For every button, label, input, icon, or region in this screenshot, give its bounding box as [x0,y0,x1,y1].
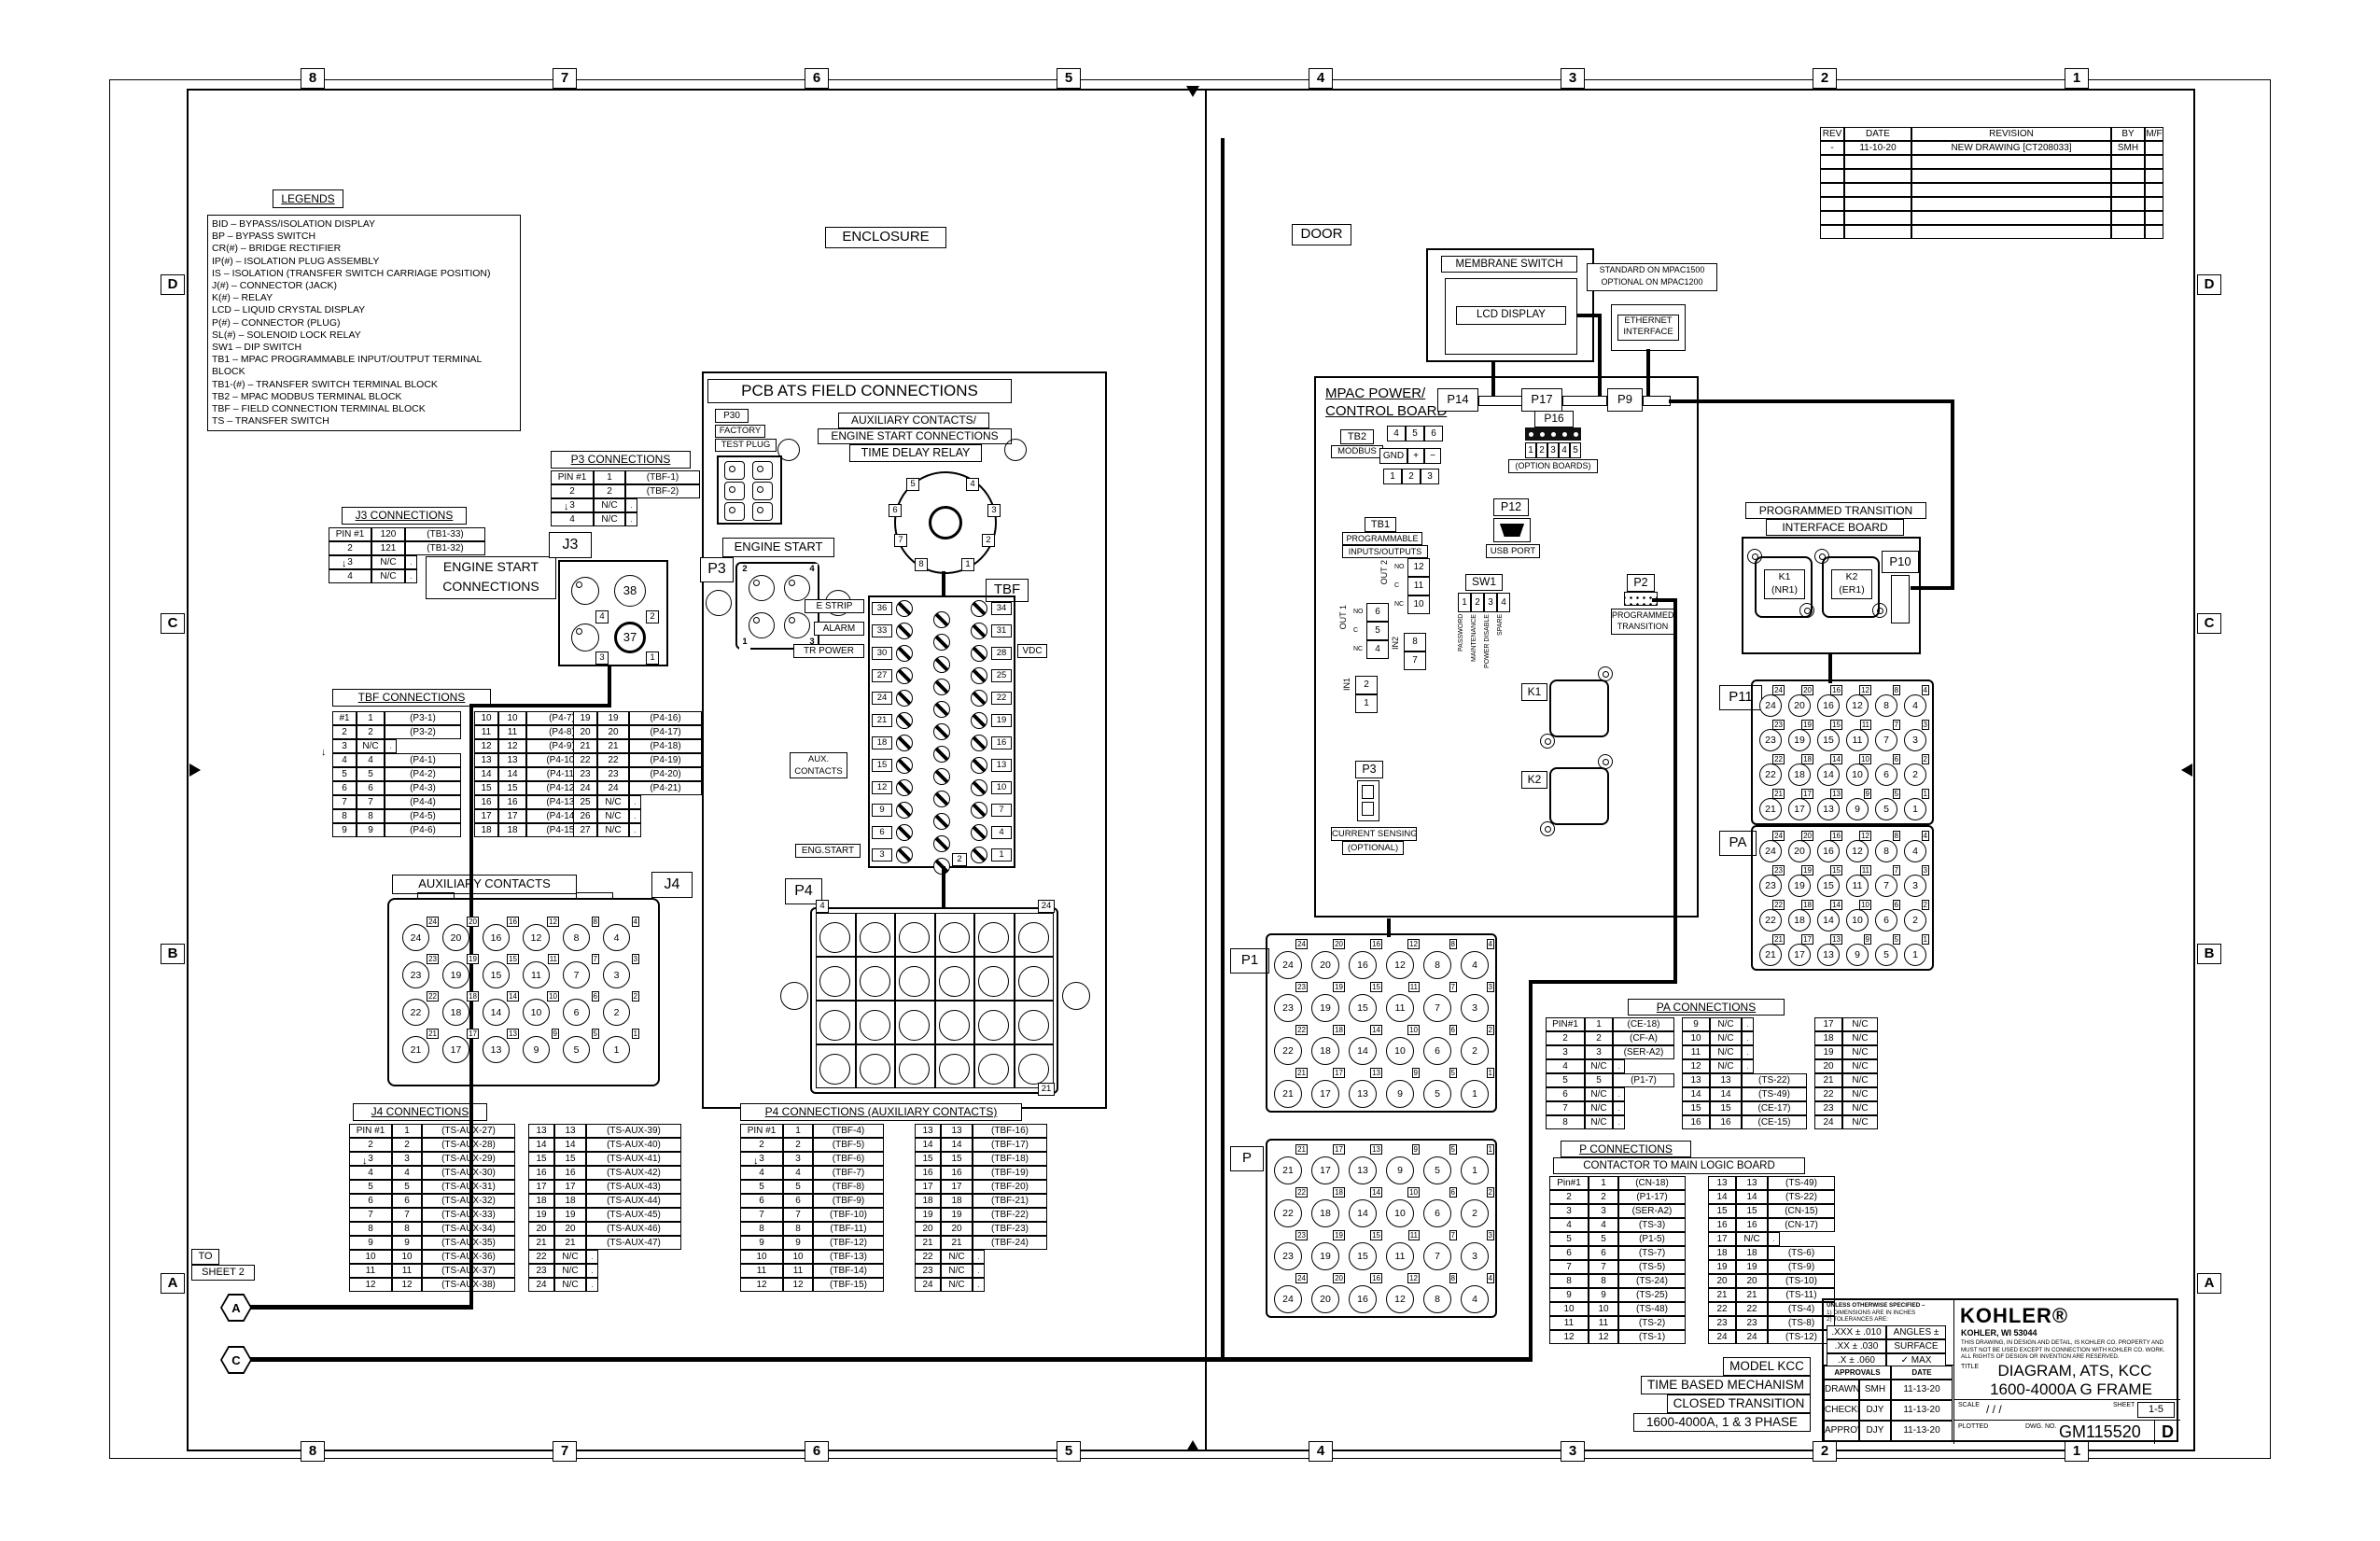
pin-row: 66(P4-3) [332,781,461,795]
pin-number-label: 16 [507,917,519,927]
pin-number-label: 20 [1801,831,1813,841]
p3-pin-arrow: ↓ [564,501,569,512]
connector-pin [895,957,935,1001]
pin-socket: 17 [1788,798,1811,820]
pin-cell: 24 [528,1278,554,1292]
zone-label: 3 [1561,68,1585,89]
pin-cell: 4 [357,753,385,767]
tb1-terminal-tag: NC [1394,595,1407,614]
pin-row: REVDATEREVISIONBYM/F [1820,127,2163,141]
zone-label: 1 [2065,1441,2089,1462]
pin-number-label: 15 [1370,982,1382,992]
connector-pin: 1010 [1383,1187,1421,1230]
pin-number-label: 17 [1801,789,1813,799]
pin-socket: 18 [1311,1199,1339,1227]
pin-cell: (CE-15) [1742,1115,1807,1129]
connector-pin: 11 [1458,1144,1495,1187]
pin-cell: (TBF-4) [813,1124,884,1138]
legend-entry: TB1 – MPAC PROGRAMMABLE INPUT/OUTPUT TER… [212,354,516,378]
terminal-row: GND+− [1379,448,1441,464]
pin-row: 27N/C. [573,823,702,837]
pin-row: 22N/C [1814,1087,1878,1101]
pin-cell: 2 [551,484,594,498]
pin-number-label: 10 [1859,900,1871,910]
pin-cell: N/C [1842,1059,1878,1073]
pin-socket: 12 [1386,1285,1414,1313]
pin-cell: . [1613,1101,1625,1115]
j3-pin-hole-2 [571,623,599,651]
connector-pin: 1414 [480,991,520,1029]
pin-row: 17N/C. [1708,1232,1835,1246]
pin-socket: 20 [1311,1285,1339,1313]
pin-number-label: 4 [1487,939,1494,949]
pin-cell: PIN #1 [740,1124,783,1138]
pin-cell: 21 [941,1236,973,1250]
pin-cell: 22 [573,753,597,767]
wire-segment [1669,399,1954,403]
fold-arrow-left [189,763,201,777]
connector-pin: 1616 [1814,685,1843,720]
ptib-k1-name: K1 [1779,571,1791,582]
pin-cell: 20 [597,725,629,739]
tb1-terminal: NO6 [1353,603,1389,622]
pin-number-label: 20 [1333,1273,1345,1283]
pin-row [1820,155,2163,169]
connector-pin [816,1044,856,1088]
pin-cell: 16 [1736,1218,1768,1232]
pin-cell: 12 [1589,1330,1618,1344]
connector-pin [856,957,896,1001]
zone-label: 8 [301,68,325,89]
pa-table-g1: PIN#11(CE-18)22(CF-A)33(SER-A2)4N/C.55(P… [1546,1017,1674,1129]
option-boards-label: (OPTION BOARDS) [1508,459,1598,473]
pin-socket: 9 [523,1036,550,1063]
pin-row: 10N/C. [1682,1031,1807,1045]
pin-socket: 8 [1875,694,1897,717]
terminal-screw [933,634,950,651]
wire-segment [250,1305,473,1310]
connector-pin: 33 [600,954,640,991]
p30-socket [724,502,745,521]
pin-row [1820,225,2163,239]
k2-screw [1598,754,1613,769]
pin-cell: (TS-6) [1768,1246,1835,1260]
in1-label: IN1 [1342,678,1351,691]
connector-pin: 88 [1872,685,1901,720]
pin-number-label: 14 [1830,900,1842,910]
pin-socket: 1 [1461,1156,1489,1184]
connector-pin [935,1044,975,1088]
pcb-subtitle-engine: ENGINE START CONNECTIONS [818,428,1012,444]
wire-segment [942,571,945,597]
pin-socket: 11 [1846,875,1869,897]
pin-number-label: 10 [1407,1025,1420,1035]
pin-socket: 5 [1875,798,1897,820]
pin-cell: NEW DRAWING [CT208033] [1911,141,2111,155]
pin-cell: 10 [1549,1302,1589,1316]
tb1-label: TB1 [1365,517,1396,532]
pin-cell: 7 [1546,1101,1585,1115]
pin-cell: 22 [1736,1302,1768,1316]
pin-cell: M/F [2145,127,2163,141]
tb1-terminal: 7 [1404,651,1426,670]
connector-pin: 33 [1458,982,1495,1025]
terminal-screw [971,667,987,684]
pin-cell: 8 [740,1222,783,1236]
pin-cell: (TS-AUX-42) [586,1166,681,1180]
connector-pin: 1414 [1346,1187,1383,1230]
pin-socket: 22 [402,999,429,1026]
p3-table-title: P3 CONNECTIONS [551,451,691,469]
pin-row: 1010(TS-48) [1549,1302,1686,1316]
terminal-screw [971,712,987,729]
j3-connector: 38 37 4 2 3 1 [558,560,668,666]
sw1-switches: 1234 [1458,593,1510,612]
pin-number-label: 3 [1922,720,1929,730]
pin-row: APPROVEDDJY11-13-20 [1824,1421,1953,1441]
pin-number-label: 12 [1407,939,1420,949]
pin-socket: 12 [1846,840,1869,862]
pin-number-label: 3 [1922,865,1929,876]
wire-segment [942,866,945,909]
engine-start-connections-label: ENGINE START CONNECTIONS [426,556,556,599]
pin-cell: DJY [1859,1400,1891,1421]
pin-socket: 19 [1788,875,1811,897]
pin-cell: (TS-AUX-37) [422,1264,515,1278]
pin-row: 22(TS-AUX-28) [349,1138,515,1152]
pin-cell: 8 [349,1222,392,1236]
pin-number-label: 8 [1893,831,1900,841]
pin-number-label: 24 [1295,939,1308,949]
pin-socket: 22 [1274,1037,1302,1065]
pin-row: 18N/C [1814,1031,1878,1045]
pin-socket: 16 [1817,840,1840,862]
pin-socket: 1 [603,1036,630,1063]
pin-cell: 11 [498,725,526,739]
out2-label: OUT 2 [1379,560,1389,584]
pin-row: 1414(TBF-17) [915,1138,1047,1152]
pin-number-label: 9 [1864,934,1871,945]
connector-pin: 1616 [1814,831,1843,865]
pin-cell: 17 [498,809,526,823]
pin-number-label: 1 [1487,1144,1494,1155]
pin-cell: 16 [1708,1218,1736,1232]
pin-cell [1844,155,1911,169]
pin-row: 1818(TS-AUX-44) [528,1194,681,1208]
pin-number-label: 19 [467,954,479,964]
pin-socket: 6 [1875,763,1897,786]
pin-row: 99(TBF-12) [740,1236,884,1250]
connector-pin: 1212 [520,917,560,954]
pin-row: 33(SER-A2) [1546,1045,1674,1059]
pin-cell: 17 [554,1180,586,1194]
pin-cell: SURFACE FINISH [1886,1339,1946,1353]
connector-pin: 55 [560,1029,600,1066]
mpac-title-line2: CONTROL BOARD [1325,402,1447,420]
pin-row: 24N/C. [528,1278,681,1292]
pin-cell: 6 [357,781,385,795]
pin-number-label: 11 [1860,720,1871,730]
tb2-row2: GND+− [1379,448,1441,464]
pin-cell: (TB1-33) [405,527,485,541]
p4-corner-21: 21 [1038,1083,1055,1096]
pin-cell: 23 [528,1264,554,1278]
tb1-terminal-number: 1 [1355,694,1378,713]
connector-pin: 2020 [1785,685,1814,720]
connector-pin: 44 [1901,831,1930,865]
pin-cell: 11 [740,1264,783,1278]
pin-cell: (TBF-14) [813,1264,884,1278]
pin-socket: 24 [1274,951,1302,979]
pin-cell [1844,225,1911,239]
connector-pin [974,957,1015,1001]
ethernet-label-line1: ETHERNET [1624,315,1672,326]
pin-cell: 24 [597,781,629,795]
pin-number-label: 21 [1295,1068,1308,1078]
zone-label: 3 [1561,1441,1585,1462]
pin-socket: 8 [1423,951,1451,979]
j3-pinnum-3: 3 [595,651,609,665]
j4-table-g2: 1313(TS-AUX-39)1414(TS-AUX-40)1515(TS-AU… [528,1124,681,1292]
ptib-k2-ref: (ER1) [1839,584,1864,595]
pin-cell: 20 [915,1222,941,1236]
tdr-pin-4: 4 [966,478,979,491]
pin-cell: 2 [357,725,385,739]
pin-cell: (TBF-12) [813,1236,884,1250]
p4-table-title: P4 CONNECTIONS (AUXILIARY CONTACTS) [740,1103,1022,1121]
pin-cell: . [629,823,641,837]
pin-cell: (TS-7) [1618,1246,1686,1260]
model-line4: 1600-4000A, 1 & 3 PHASE [1633,1413,1811,1432]
legend-entry: SW1 – DIP SWITCH [212,342,516,354]
pin-row: 2121(TS-AUX-47) [528,1236,681,1250]
pin-number-label: 22 [1295,1025,1308,1035]
pin-cell: DJY [1859,1421,1891,1441]
pin-cell: 16 [554,1166,586,1180]
pin-number-label: 2 [1922,900,1929,910]
pin-cell: 20 [1814,1059,1842,1073]
pin-cell: 14 [474,767,498,781]
pin-cell: N/C [1842,1017,1878,1031]
drawing-title-line2: 1600-4000A G FRAME [1966,1380,2177,1399]
connector-pin [895,1001,935,1044]
pin-cell: 10 [740,1250,783,1264]
pin-number-label: 4 [1487,1273,1494,1283]
pin-cell: 15 [554,1152,586,1166]
p30-testplug-label: TEST PLUG [715,439,777,452]
pin-cell: N/C [597,809,629,823]
connector-pin: 55 [1872,789,1901,823]
pin-row: 1515(CE-17) [1682,1101,1807,1115]
pin-row: 55(TS-AUX-31) [349,1180,515,1194]
dip-switch-label: MAINTENANCE [1471,614,1484,693]
pin-number-label: 6 [1893,900,1900,910]
pin-number-label: 15 [1830,720,1842,730]
pin-row: Pin#11(CN-18) [1549,1176,1686,1190]
door-p3-connector [1357,780,1379,821]
terminal-screw [971,623,987,639]
mpac-option-note-line1: STANDARD ON MPAC1500 [1600,265,1705,274]
dip-switch-label: PASSWORD [1458,614,1471,693]
pin-cell: 14 [554,1138,586,1152]
pin-cell: 13 [1682,1073,1710,1087]
tbf-terminal-number: 28 [991,647,1012,660]
pin-socket: 23 [1759,875,1782,897]
pin-cell: 15 [498,781,526,795]
connector-pin: 1818 [1309,1187,1346,1230]
pin-cell: 21 [554,1236,586,1250]
terminal-cell: 4 [1559,442,1570,458]
pin-cell: 6 [740,1194,783,1208]
pin-cell: (TS-2) [1618,1316,1686,1330]
pin-cell: (TS-AUX-46) [586,1222,681,1236]
pin-cell: (TBF-23) [973,1222,1047,1236]
revision-table: REVDATEREVISIONBYM/F-11-10-20NEW DRAWING… [1820,127,2163,239]
j3-pin-37: 37 [614,622,646,653]
pin-row: PIN #11(TBF-1) [551,470,700,484]
pin-cell: . [973,1264,985,1278]
dwg-number: GM115520 [2059,1422,2141,1442]
pin-row: 12N/C. [1682,1059,1807,1073]
pin-cell: 11-13-20 [1891,1380,1953,1400]
pin-cell [1820,225,1844,239]
date-header: DATE [1891,1366,1953,1380]
pin-number-label: 2 [1922,754,1929,764]
pin-cell: 13 [1736,1176,1768,1190]
terminal-cell: 4 [1387,426,1406,441]
pin-row [1820,197,2163,211]
zone-label: 5 [1057,1441,1081,1462]
pin-number-label: 18 [1333,1187,1345,1198]
connector-pin [895,1044,935,1088]
pin-cell: N/C [371,569,405,583]
pin-cell: 3 [1589,1204,1618,1218]
pin-cell: PIN #1 [551,470,594,484]
terminal-screw [933,611,950,628]
pin-socket: 21 [1274,1080,1302,1108]
pin-cell: 21 [597,739,629,753]
pin-cell [1911,197,2111,211]
pin-row: 1212(TS-1) [1549,1330,1686,1344]
pin-cell: 16 [915,1166,941,1180]
flag-a: A [220,1294,252,1322]
pin-socket [1018,1010,1049,1041]
pin-cell: (TS-1) [1618,1330,1686,1344]
tb1-terminal: 2 [1355,676,1378,694]
pin-cell: - [1820,141,1844,155]
fold-arrow-top [1186,86,1199,97]
pin-socket: 20 [1788,694,1811,717]
pin-cell: 17 [528,1180,554,1194]
pin-cell: DRAWN [1824,1380,1859,1400]
pin-row: 2323(TS-8) [1708,1316,1835,1330]
pin-cell: N/C [594,498,625,512]
pin-number-label: 6 [1893,754,1900,764]
pin-number-label: 8 [1449,939,1457,949]
pin-row: 1313(TS-22) [1682,1073,1807,1087]
ptib-k2-name: K2 [1846,571,1858,582]
pin-number-label: 5 [592,1029,599,1039]
pin-cell: (TS-AUX-36) [422,1250,515,1264]
pin-cell [2111,155,2145,169]
p3-socket [784,612,810,638]
j3-pinnum-2: 2 [646,610,659,623]
p1-label: P1 [1230,948,1269,974]
pin-cell: 6 [1589,1246,1618,1260]
pin-cell: N/C [357,739,385,753]
connector-pin: 2121 [1757,934,1785,969]
terminal-cell: 1 [1383,469,1402,484]
pin-cell: (TS-AUX-28) [422,1138,515,1152]
pin-cell: 18 [528,1194,554,1208]
p3-pinnum-1: 1 [739,637,750,650]
connector-pin: 1313 [1346,1144,1383,1187]
tb1-terminal-number: 2 [1355,676,1378,694]
pin-cell: 15 [474,781,498,795]
pin-row: 33(TS-AUX-29) [349,1152,515,1166]
pin-cell: (P4-1) [385,753,461,767]
pin-cell: N/C [1842,1073,1878,1087]
connector-pin: 66 [560,991,600,1029]
pin-socket [819,1054,850,1085]
pin-number-label: 11 [1408,1230,1420,1240]
k2-relay [1549,767,1609,825]
connector-pin: 2424 [1271,939,1309,982]
tdr-pin-5: 5 [906,478,919,491]
tbf-terminal-number: 33 [872,624,892,637]
pin-cell: 3 [332,739,357,753]
terminal-cell: + [1407,448,1424,464]
connector-pin [935,1001,975,1044]
tbf-terminal-number: 25 [991,669,1012,682]
pin-cell: (TS-AUX-47) [586,1236,681,1250]
pin-cell: N/C [597,795,629,809]
p-table-g1: Pin#11(CN-18)22(P1-17)33(SER-A2)44(TS-3)… [1549,1176,1686,1344]
pin-row: 26N/C. [573,809,702,823]
connector-pin: 66 [1872,900,1901,934]
pin-number-label: 18 [1801,754,1813,764]
connector-pin: 99 [1843,934,1872,969]
pin-cell: 3 [392,1152,422,1166]
pin-socket [978,1010,1009,1041]
pin-cell: . [1613,1059,1625,1073]
pin-row: 1414(TS-49) [1682,1087,1807,1101]
pin-number-label: 21 [1772,789,1785,799]
pin-cell: 2 [1585,1031,1613,1045]
pin-socket [860,922,890,953]
pin-cell: 17 [915,1180,941,1194]
pin-cell: 21 [528,1236,554,1250]
pin-cell: (TS-24) [1618,1274,1686,1288]
j4-key-tab-1 [417,892,455,900]
tbf-table-title: TBF CONNECTIONS [332,689,491,707]
terminal-screw [933,813,950,830]
connector-pin: 33 [1901,865,1930,900]
pin-cell: 24 [1814,1115,1842,1129]
pin-cell: 19 [1708,1260,1736,1274]
pin-row: 21N/C [1814,1073,1878,1087]
connector-pin: 1515 [1346,1230,1383,1273]
pin-cell: 21 [1814,1073,1842,1087]
connector-pin: 1313 [480,1029,520,1066]
pin-cell: 12 [498,739,526,753]
ptib-k1-label: K1 (NR1) [1764,569,1805,599]
pin-socket: 15 [1817,729,1840,751]
model-line1: MODEL KCC [1723,1357,1811,1376]
pin-cell: N/C [554,1264,586,1278]
pin-socket: 4 [1461,1285,1489,1313]
pin-row: 1414(TS-AUX-40) [528,1138,681,1152]
